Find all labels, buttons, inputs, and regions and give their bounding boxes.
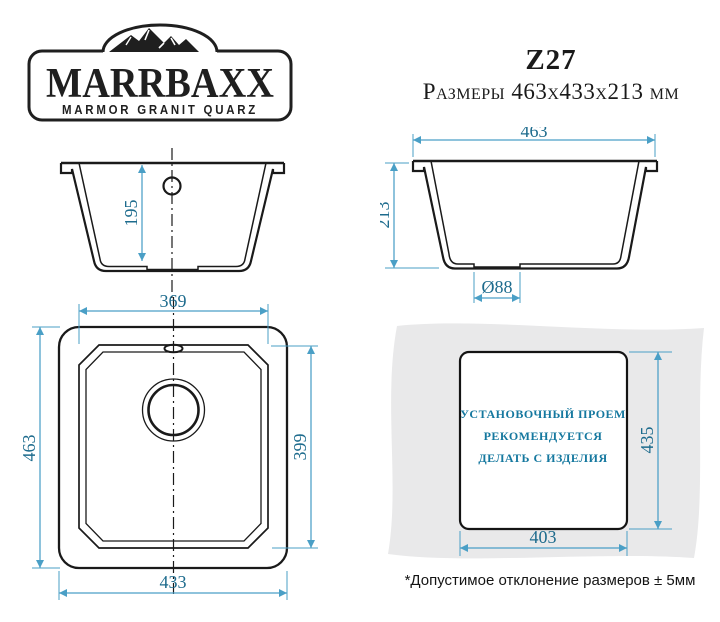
dim-label-height: 213 [380,202,393,229]
dim-label-depth: 195 [121,200,141,227]
cutout-note-line3: ДЕЛАТЬ С ИЗДЕЛИЯ [478,451,607,465]
dim-label-bowl-depth: 399 [290,434,310,461]
dim-label-cutout-depth: 435 [637,427,657,454]
brand-logo: MARRBAXX MARMOR GRANIT QUARZ [25,18,295,124]
brand-subtitle: MARMOR GRANIT QUARZ [62,103,258,117]
cutout-note: УСТАНОВОЧНЫЙ ПРОЕМ РЕКОМЕНДУЕТСЯ ДЕЛАТЬ … [460,407,626,465]
side-section-view: 195 [25,140,335,305]
dim-label-bowl-width: 369 [160,292,187,311]
dim-label-drain: Ø88 [482,277,513,297]
dim-label-width: 463 [521,127,548,141]
sink-outer-profile [413,161,657,269]
dim-label-outer-depth: 463 [22,435,39,462]
front-section-view: 463 213 Ø88 [380,127,715,317]
cutout-view: УСТАНОВОЧНЫЙ ПРОЕМ РЕКОМЕНДУЕТСЯ ДЕЛАТЬ … [375,315,720,585]
extension-lines-213 [385,163,439,268]
top-view: 369 463 399 433 [22,292,337,622]
overall-sizes: Размеры 463х433х213 мм [390,78,712,106]
cutout-note-line2: РЕКОМЕНДУЕТСЯ [484,429,603,443]
brand-name: MARRBAXX [46,61,274,107]
model-block: Z27 Размеры 463х433х213 мм [390,44,712,106]
sink-inner-profile [431,161,639,267]
dim-label-outer-width: 433 [160,572,187,592]
cutout-note-line1: УСТАНОВОЧНЫЙ ПРОЕМ [460,407,626,421]
dim-label-cutout-width: 403 [530,527,557,547]
tolerance-note: *Допустимое отклонение размеров ± 5мм [383,572,717,589]
model-name: Z27 [390,44,712,76]
datasheet-page: MARRBAXX MARMOR GRANIT QUARZ Z27 Размеры… [0,0,720,622]
